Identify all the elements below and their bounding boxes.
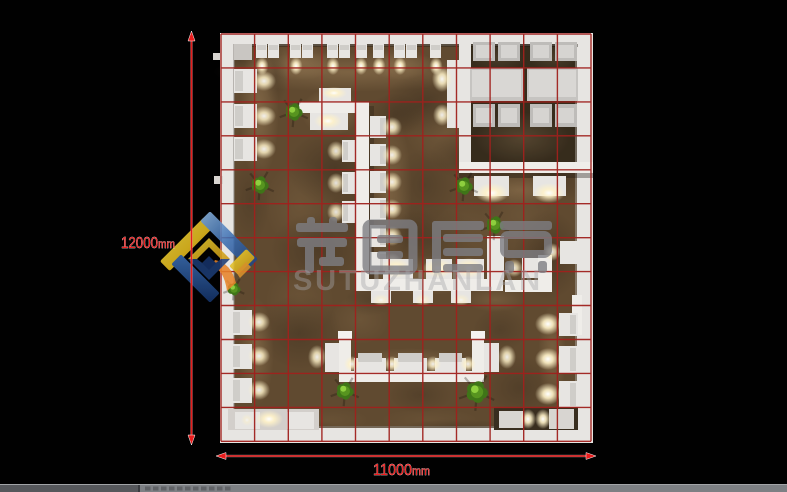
svg-text:SUTUZHANLAN: SUTUZHANLAN — [293, 265, 543, 297]
